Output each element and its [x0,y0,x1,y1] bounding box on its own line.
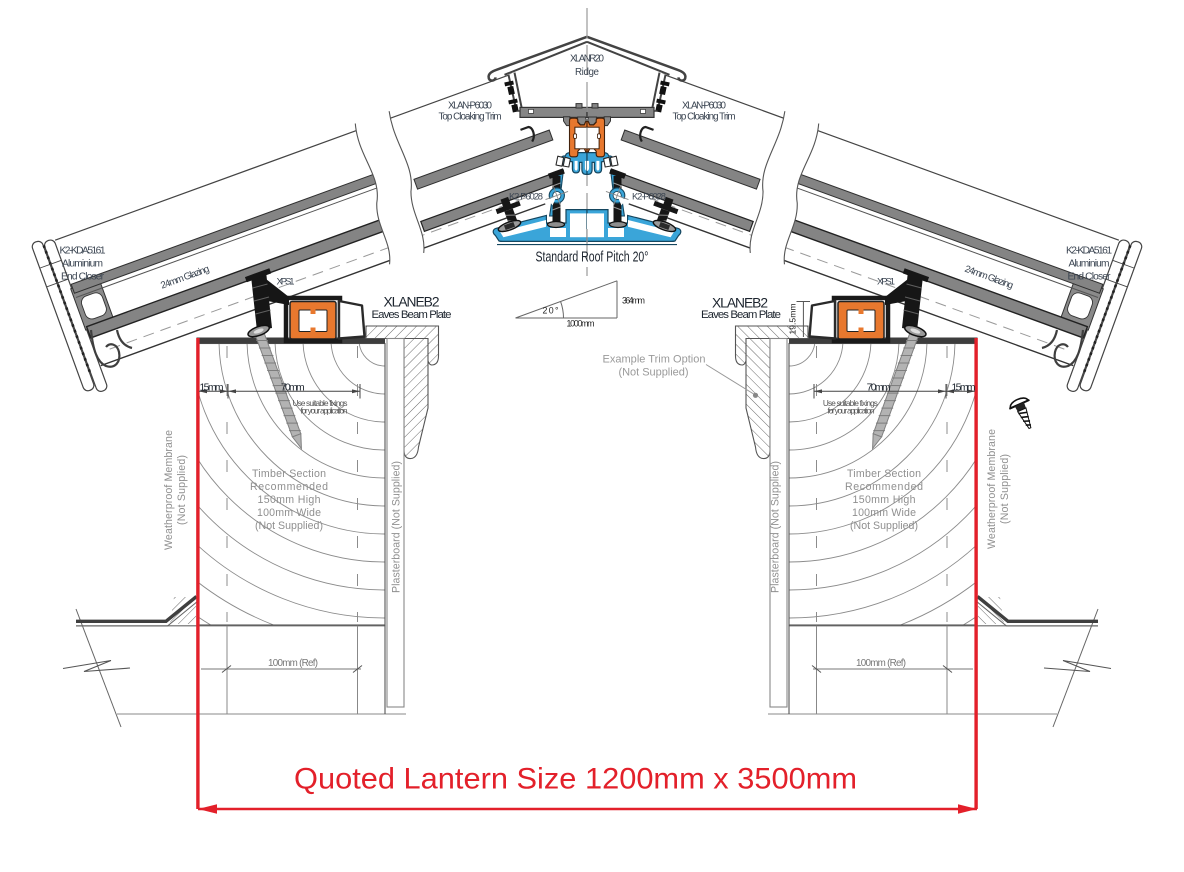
svg-text:(Not Supplied): (Not Supplied) [176,455,188,525]
svg-text:70mm: 70mm [867,382,891,393]
svg-text:Plasterboard (Not Supplied): Plasterboard (Not Supplied) [391,461,403,593]
svg-text:Recommended: Recommended [845,481,923,493]
svg-text:Weatherproof Membrane: Weatherproof Membrane [163,430,175,550]
svg-text:XLANEB2: XLANEB2 [384,295,440,310]
svg-text:(Not Supplied): (Not Supplied) [850,520,918,532]
svg-text:Weatherproof Membrane: Weatherproof Membrane [986,429,998,549]
svg-text:End Closer: End Closer [61,272,105,283]
svg-text:K2-P6028: K2-P6028 [632,191,666,202]
svg-text:Timber Section: Timber Section [252,468,326,480]
svg-text:Eaves Beam Plate: Eaves Beam Plate [372,309,452,321]
svg-text:(Not Supplied): (Not Supplied) [999,454,1011,524]
svg-text:100mm (Ref): 100mm (Ref) [856,658,906,669]
svg-text:20°: 20° [543,306,559,316]
svg-text:15mm: 15mm [200,382,224,393]
svg-text:150mm High: 150mm High [853,494,916,506]
svg-text:(Not Supplied): (Not Supplied) [255,520,323,532]
svg-text:15mm: 15mm [952,382,976,393]
svg-text:Timber Section: Timber Section [847,468,921,480]
svg-text:364mm: 364mm [622,296,645,306]
svg-text:19.5mm: 19.5mm [788,303,798,334]
svg-text:1000mm: 1000mm [567,319,595,329]
svg-text:XLAN-P6030: XLAN-P6030 [448,101,493,112]
svg-text:(Not Supplied): (Not Supplied) [619,367,689,379]
svg-text:Top Cloaking Trim: Top Cloaking Trim [673,112,736,123]
svg-text:100mm Wide: 100mm Wide [852,507,916,519]
svg-text:K2-KDA5161: K2-KDA5161 [1066,246,1112,257]
svg-text:End Closer: End Closer [1068,272,1112,283]
svg-text:XPS1: XPS1 [877,276,895,287]
svg-text:XPS1: XPS1 [277,276,295,287]
svg-text:Recommended: Recommended [250,481,328,493]
svg-text:Top Cloaking Trim: Top Cloaking Trim [439,112,502,123]
svg-text:K2-P6028: K2-P6028 [509,191,543,202]
svg-text:70mm: 70mm [281,382,305,393]
svg-text:Ridge: Ridge [575,67,600,78]
svg-text:Standard Roof Pitch 20°: Standard Roof Pitch 20° [536,250,649,266]
svg-text:Example Trim Option: Example Trim Option [603,354,706,366]
svg-text:XLANR20: XLANR20 [570,54,605,65]
svg-text:for your application: for your application [828,407,875,416]
svg-text:100mm (Ref): 100mm (Ref) [268,658,318,669]
svg-text:K2-KDA5161: K2-KDA5161 [60,246,106,257]
svg-text:Aluminium: Aluminium [62,259,103,270]
svg-text:Plasterboard (Not Supplied): Plasterboard (Not Supplied) [770,461,782,593]
svg-text:for your application: for your application [301,407,348,416]
svg-text:100mm Wide: 100mm Wide [257,507,321,519]
svg-text:XLAN-P6030: XLAN-P6030 [682,101,727,112]
svg-text:Quoted Lantern Size 1200mm x 3: Quoted Lantern Size 1200mm x 3500mm [294,763,857,796]
svg-text:Eaves Beam Plate: Eaves Beam Plate [701,309,781,321]
svg-text:150mm High: 150mm High [258,494,321,506]
svg-text:Aluminium: Aluminium [1069,259,1110,270]
